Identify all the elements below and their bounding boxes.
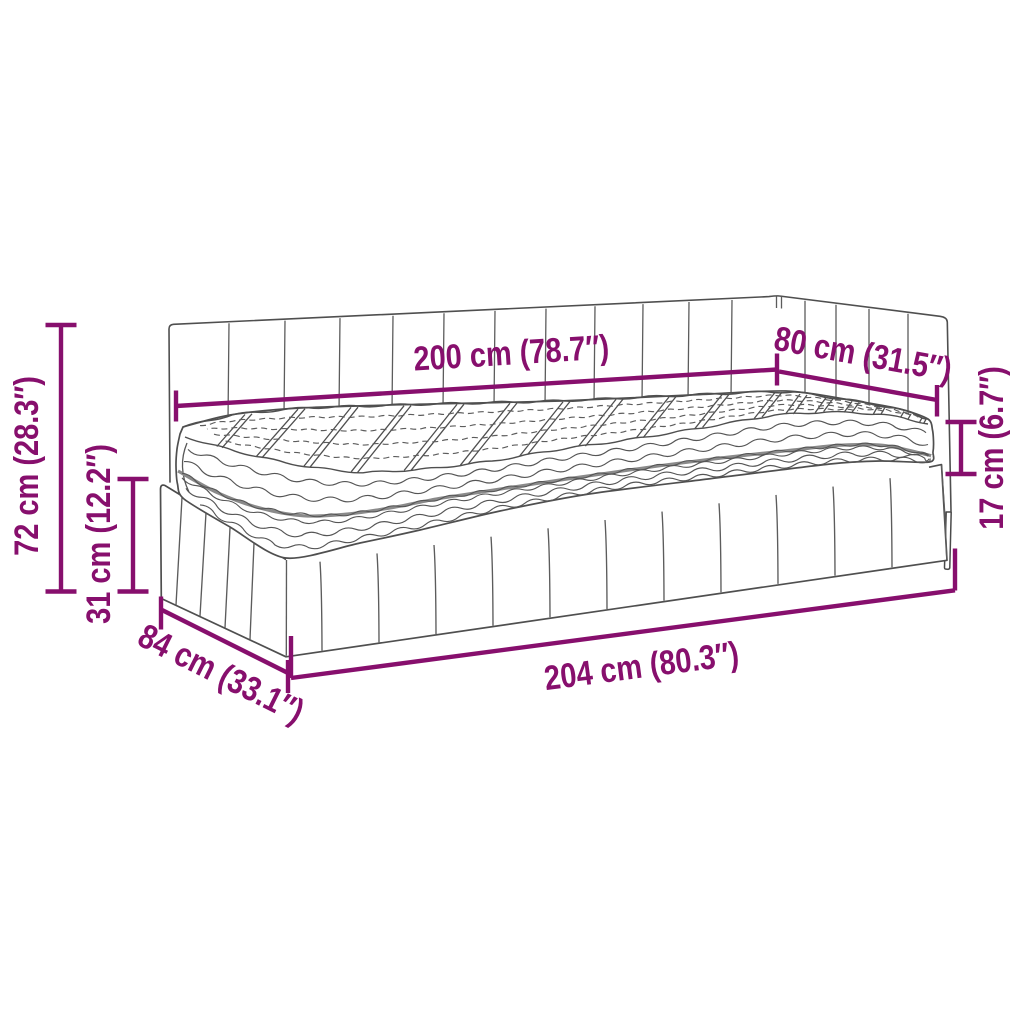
svg-text:17 cm (6.7″): 17 cm (6.7″) [972, 366, 1011, 530]
svg-text:72 cm (28.3″): 72 cm (28.3″) [7, 376, 46, 556]
svg-text:31 cm (12.2″): 31 cm (12.2″) [79, 444, 118, 624]
